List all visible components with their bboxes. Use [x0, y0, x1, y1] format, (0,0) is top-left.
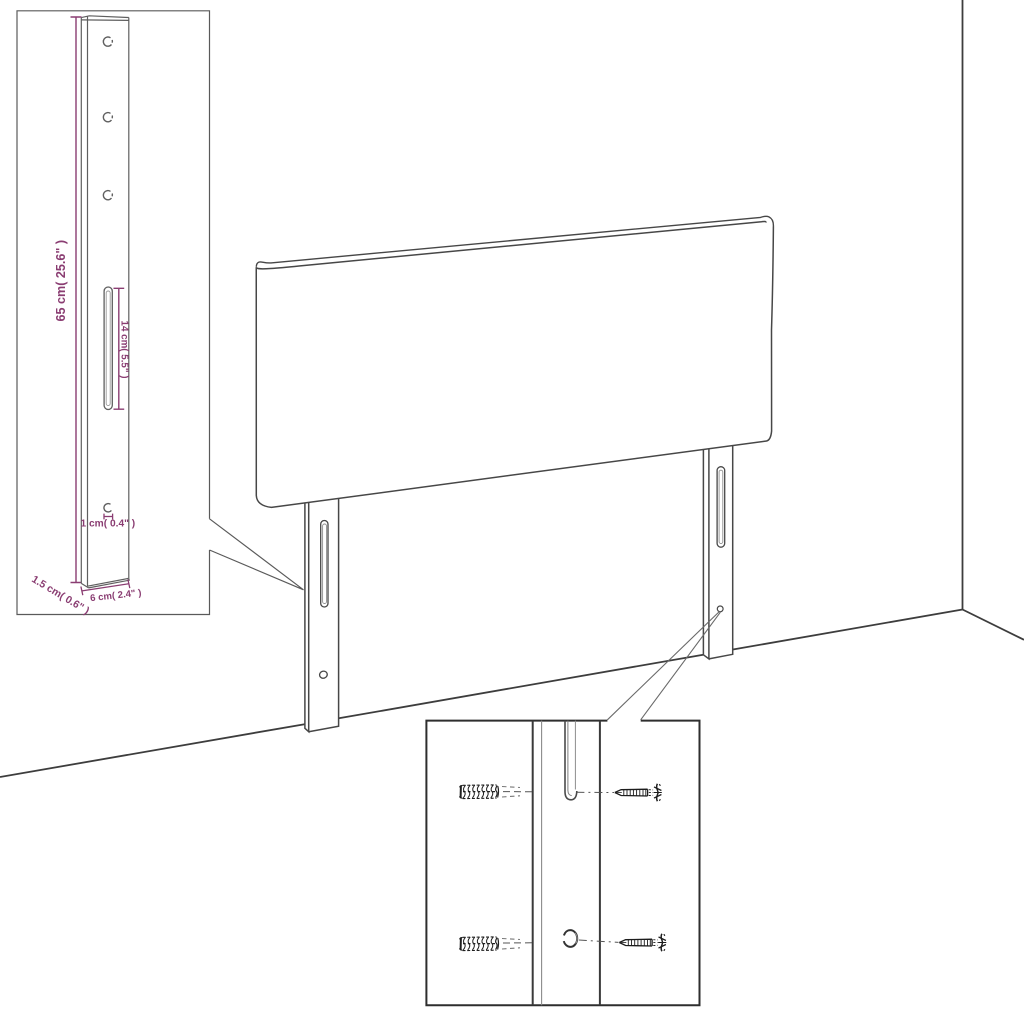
svg-text:6 cm( 2.4" ): 6 cm( 2.4" ): [90, 588, 142, 605]
svg-text:65 cm( 25.6" ): 65 cm( 25.6" ): [54, 240, 68, 322]
svg-text:14 cm( 5.5" ): 14 cm( 5.5" ): [119, 321, 130, 379]
svg-text:1 cm( 0.4" ): 1 cm( 0.4" ): [81, 519, 136, 530]
